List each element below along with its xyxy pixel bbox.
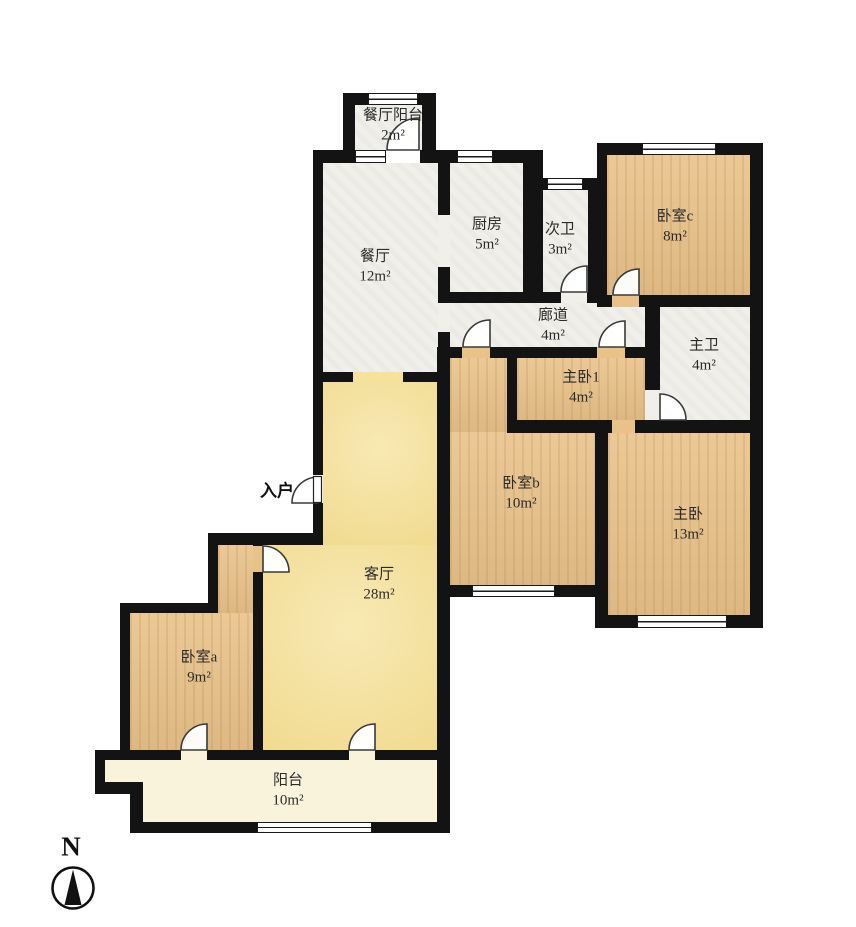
wall-segment [438,163,450,215]
wall-segment [588,178,597,303]
room-area: 4m² [538,326,568,346]
room-name: 主卧1 [562,369,600,389]
room-area: 3m² [545,240,575,260]
room-label-dining: 餐厅 12m² [359,248,390,287]
window [355,150,386,163]
room-name: 主卧 [672,506,703,526]
door-threshold [645,390,660,420]
wall-segment [403,372,438,382]
door-threshold [349,750,375,760]
wall-segment [523,150,543,303]
wall-segment [208,533,323,545]
entrance-label: 入户 [260,477,294,502]
room-label-bedroom-b: 卧室b 10m² [502,475,540,514]
room-area: 12m² [359,267,390,287]
window [257,822,372,833]
door-threshold [353,372,403,382]
wall-segment [597,295,612,307]
structure-layer [0,0,856,927]
wall-segment [597,143,607,307]
room-area: 10m² [272,791,303,811]
door-threshold [438,215,450,267]
room-name: 卧室b [502,475,540,495]
room-name: 客厅 [363,566,394,586]
room-name: 廊道 [538,307,568,327]
room-label-living: 客厅 28m² [363,566,394,605]
wall-segment [437,347,450,833]
door-threshold [597,347,625,358]
window [368,93,418,105]
room-area: 28m² [363,585,394,605]
room-label-bath-master: 主卫 4m² [689,337,719,376]
wall-segment [595,432,608,628]
door-threshold [561,292,587,303]
room-label-master-bedroom-1: 主卧1 4m² [562,369,600,408]
room-name: 卧室a [181,649,218,669]
window [642,143,716,155]
wall-segment [625,347,660,358]
room-label-bedroom-a: 卧室a 9m² [181,649,218,688]
room-name: 餐厅 [359,248,390,268]
room-label-corridor: 廊道 4m² [538,307,568,346]
wall-segment [313,372,353,382]
room-area: 9m² [181,668,218,688]
room-label-kitchen: 厨房 5m² [472,216,502,255]
door-threshold [438,303,450,332]
wall-segment [120,603,130,750]
wall-segment [208,533,218,613]
wall-segment [438,292,561,303]
room-name: 厨房 [472,216,502,236]
wall-segment [120,603,218,613]
wall-segment [207,750,349,760]
room-label-dining-balcony: 餐厅阳台 2m² [363,107,423,146]
wall-segment [507,358,517,420]
room-name: 次卫 [545,221,575,241]
room-area: 13m² [672,525,703,545]
room-area: 4m² [689,356,719,376]
room-name: 餐厅阳台 [363,107,423,127]
door-threshold [253,546,263,572]
room-area: 8m² [657,227,694,247]
door-threshold [612,295,639,307]
room-name: 阳台 [272,772,303,792]
door-threshold [612,420,635,433]
window [547,178,583,190]
room-area: 5m² [472,235,502,255]
window [472,585,555,597]
wall-segment [750,143,763,628]
wall-segment [490,347,597,358]
room-label-bath-secondary: 次卫 3m² [545,221,575,260]
wall-segment [635,420,763,433]
wall-segment [95,750,181,760]
room-label-balcony: 阳台 10m² [272,772,303,811]
wall-segment [438,267,450,303]
wall-segment [313,150,323,475]
door-threshold [181,750,207,760]
door-threshold [462,347,490,358]
wall-segment [645,358,660,390]
compass-north-label: N [61,832,81,863]
room-area: 2m² [363,126,423,146]
window [457,150,493,163]
room-name: 主卫 [689,337,719,357]
floor-plan: 餐厅阳台 2m² 餐厅 12m² 厨房 5m² 次卫 3m² 卧室c 8m² 廊… [0,0,856,927]
room-area: 10m² [502,494,540,514]
room-label-master-bedroom: 主卧 13m² [672,506,703,545]
wall-segment [587,292,597,303]
room-area: 4m² [562,388,600,408]
window [637,615,727,628]
room-name: 卧室c [657,208,694,228]
wall-segment [253,572,263,760]
room-label-bedroom-c: 卧室c 8m² [657,208,694,247]
wall-segment [645,303,660,347]
